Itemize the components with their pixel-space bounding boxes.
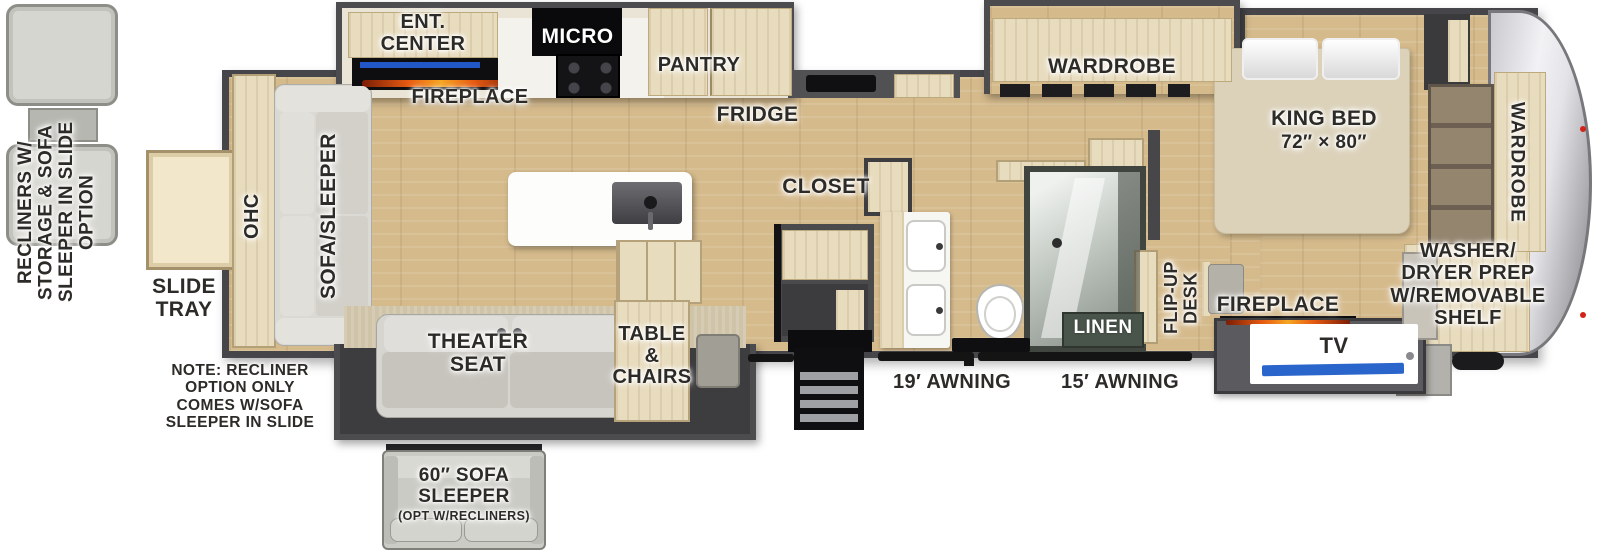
awning-19-label: 19′ AWNING xyxy=(872,372,1032,394)
sink-faucet-top xyxy=(936,243,943,250)
front-wardrobe-label: WARDROBE xyxy=(1506,80,1527,244)
ent-center-label: ENT. CENTER xyxy=(358,12,488,55)
table-chairs-label: TABLE & CHAIRS xyxy=(606,324,698,389)
king-bed-size-label: 72″ × 80″ xyxy=(1244,133,1404,154)
fridge-label: FRIDGE xyxy=(695,104,820,127)
stove xyxy=(556,54,620,98)
awning-bar-15 xyxy=(978,352,1192,361)
recliner-top xyxy=(6,4,118,106)
front-wardrobe-shelves xyxy=(1428,84,1494,246)
mid-sink xyxy=(806,75,876,92)
closet-unit-shelf-top xyxy=(782,230,868,280)
awning-bar-joint xyxy=(964,359,974,366)
closet-unit-lower-door xyxy=(836,290,864,330)
rv-floorplan-diagram: RECLINERS W/ STORAGE & SOFA SLEEPER IN S… xyxy=(0,0,1600,553)
tv-speaker-dot xyxy=(1406,352,1414,360)
sink-faucet-bottom xyxy=(936,307,943,314)
pantry-label: PANTRY xyxy=(640,55,758,77)
island-sink-drain xyxy=(644,196,657,209)
pantry-cabinet xyxy=(648,8,708,96)
pillow-right xyxy=(1322,38,1400,80)
mid-cabinet xyxy=(894,74,954,98)
dining-hutch xyxy=(616,240,702,304)
sofa-sleeper-label: SOFA/SLEEPER xyxy=(318,116,341,316)
recliners-option-label: RECLINERS W/ STORAGE & SOFA SLEEPER IN S… xyxy=(16,92,98,332)
awning-15-label: 15′ AWNING xyxy=(1040,372,1200,394)
marker-light-top xyxy=(1580,126,1586,132)
tv-label: TV xyxy=(1258,334,1410,358)
closet-rod xyxy=(1000,84,1190,97)
pillow-left xyxy=(1242,38,1318,80)
sofa-option-sub-label: (OPT W/RECLINERS) xyxy=(388,510,540,524)
linen-label: LINEN xyxy=(1062,318,1144,339)
awning-bar-19 xyxy=(878,352,974,361)
closet-pole xyxy=(774,224,781,342)
rear-sofa-back-cushion-2 xyxy=(280,216,314,316)
rear-sofa-back-cushion-1 xyxy=(280,112,314,214)
ohc-label: OHC xyxy=(242,168,264,264)
entry-steps-treads xyxy=(800,372,858,426)
recliner-note-label: NOTE: RECLINER OPTION ONLY COMES W/SOFA … xyxy=(145,362,335,431)
bath-vanity-doors xyxy=(880,212,904,348)
bed-head-cabinet-door xyxy=(1448,20,1468,82)
dining-chair-right xyxy=(696,334,740,388)
bedroom-partition-wall xyxy=(1148,130,1160,240)
theater-seat-label: THEATER SEAT xyxy=(398,331,558,376)
kitchen-fireplace-label: FIREPLACE xyxy=(400,87,540,109)
fridge-cabinet xyxy=(710,8,792,96)
toilet-seat-ring xyxy=(984,296,1016,332)
marker-light-bottom xyxy=(1580,312,1586,318)
washer-dryer-label: WASHER/ DRYER PREP W/REMOVABLE SHELF xyxy=(1363,240,1573,330)
sofa-option-title-label: 60″ SOFA SLEEPER xyxy=(398,466,530,507)
bath-floor-mat xyxy=(952,338,1030,352)
awning-bar-rear xyxy=(748,354,794,362)
micro-label: MICRO xyxy=(520,26,635,49)
bedroom-fireplace-label: FIREPLACE xyxy=(1208,294,1348,317)
shower-head xyxy=(1052,238,1062,248)
hitch-step-bar xyxy=(1452,352,1504,370)
slide-tray-label: SLIDE TRAY xyxy=(126,276,242,321)
kitchen-fireplace-blue-band xyxy=(360,62,480,68)
wardrobe-slide-label: WARDROBE xyxy=(1017,56,1207,79)
closet-label: CLOSET xyxy=(760,176,892,199)
rear-sofa-arm-top xyxy=(276,86,370,112)
king-bed-label: KING BED xyxy=(1244,108,1404,131)
island-faucet xyxy=(648,212,653,230)
slide-tray xyxy=(146,150,236,270)
flip-up-desk-label: FLIP-UP DESK xyxy=(1162,246,1201,350)
